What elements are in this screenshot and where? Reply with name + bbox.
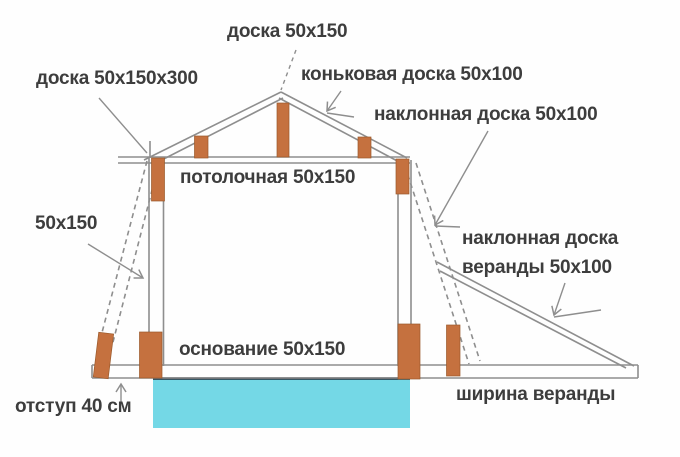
leader-side-board	[88, 244, 143, 278]
left-rafter-outer	[144, 92, 281, 160]
left-inclined-board-dash-a	[99, 161, 147, 344]
leader-board-top	[281, 50, 296, 90]
leader-ridge-board	[327, 91, 341, 111]
post-left-knee	[152, 158, 165, 201]
post-mid-right	[358, 137, 371, 158]
post-bottom-left-small	[93, 332, 113, 378]
leader-board-left	[99, 98, 147, 153]
label-veranda-width: ширина веранды	[456, 384, 615, 407]
label-ceiling-board: потолочная 50x150	[180, 167, 355, 190]
post-bottom-left-wall	[140, 332, 163, 378]
roof-frame-diagram: доска 50x150 доска 50x150x300 коньковая …	[0, 0, 680, 457]
label-offset: отступ 40 см	[15, 396, 132, 419]
label-base-board: основание 50x150	[179, 339, 345, 362]
veranda-slope-inner	[440, 271, 626, 368]
post-ridge-center	[277, 103, 289, 157]
label-veranda-board-line1: наклонная доска	[462, 225, 618, 254]
leader-inclined-board	[435, 131, 488, 225]
leader-inclined-board-tail	[435, 226, 460, 227]
left-rafter-inner	[152, 98, 283, 165]
label-veranda-board: наклонная доска веранды 50x100	[462, 225, 618, 282]
label-board-top: доска 50x150	[227, 21, 347, 44]
leader-ridge-board-tail	[327, 113, 354, 117]
post-mid-left	[195, 136, 209, 158]
label-side-board: 50x150	[35, 213, 97, 236]
foundation-block	[153, 379, 410, 428]
post-bottom-right-small	[447, 325, 461, 376]
post-bottom-right-wall	[398, 324, 420, 379]
post-right-knee	[396, 159, 409, 194]
leader-veranda-board	[554, 283, 565, 315]
leader-veranda-board-tail	[554, 310, 601, 317]
label-board-left: доска 50x150x300	[36, 68, 198, 91]
label-ridge-board: коньковая доска 50x100	[301, 64, 523, 87]
label-veranda-board-line2: веранды 50x100	[462, 254, 618, 283]
label-inclined-board: наклонная доска 50x100	[374, 104, 597, 127]
